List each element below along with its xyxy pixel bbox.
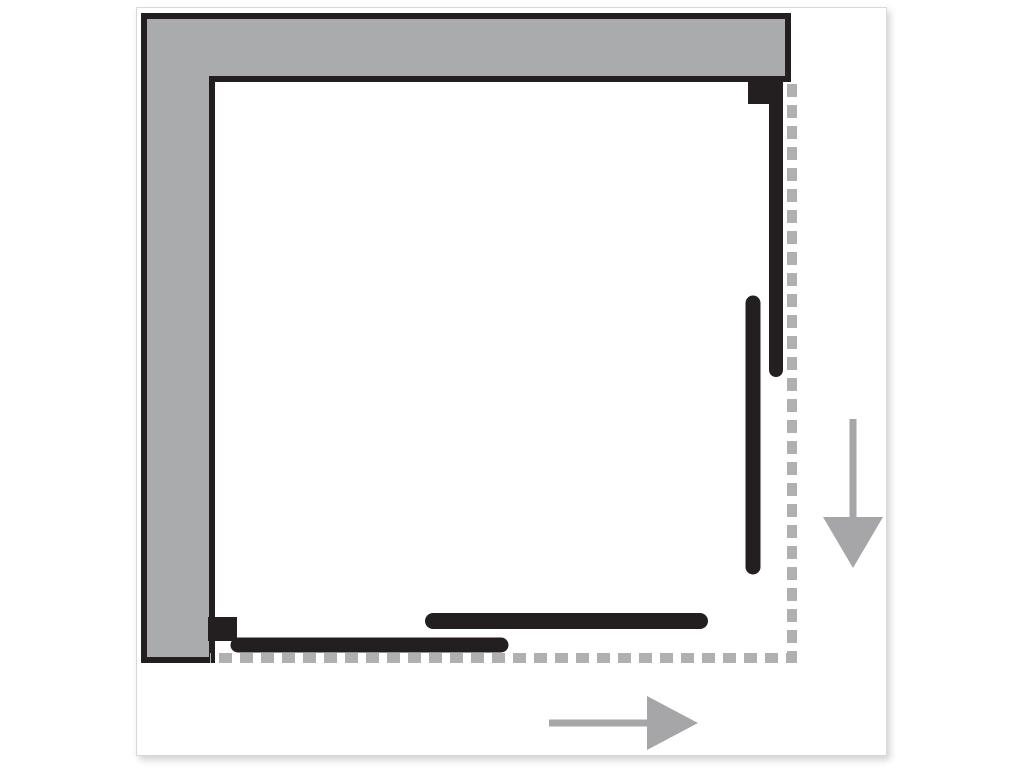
wall-outline bbox=[141, 13, 791, 663]
page-background bbox=[0, 0, 1024, 768]
arrow-down-icon bbox=[823, 419, 883, 568]
wall-surface bbox=[147, 19, 785, 657]
enclosure-footprint-dashed-outline bbox=[210, 84, 792, 658]
wall-bracket-bottom-left bbox=[208, 617, 237, 641]
shower-enclosure-plan-diagram bbox=[0, 0, 1024, 768]
arrow-down-head bbox=[823, 517, 883, 568]
arrow-right-icon bbox=[549, 696, 698, 750]
arrow-right-head bbox=[647, 696, 698, 750]
